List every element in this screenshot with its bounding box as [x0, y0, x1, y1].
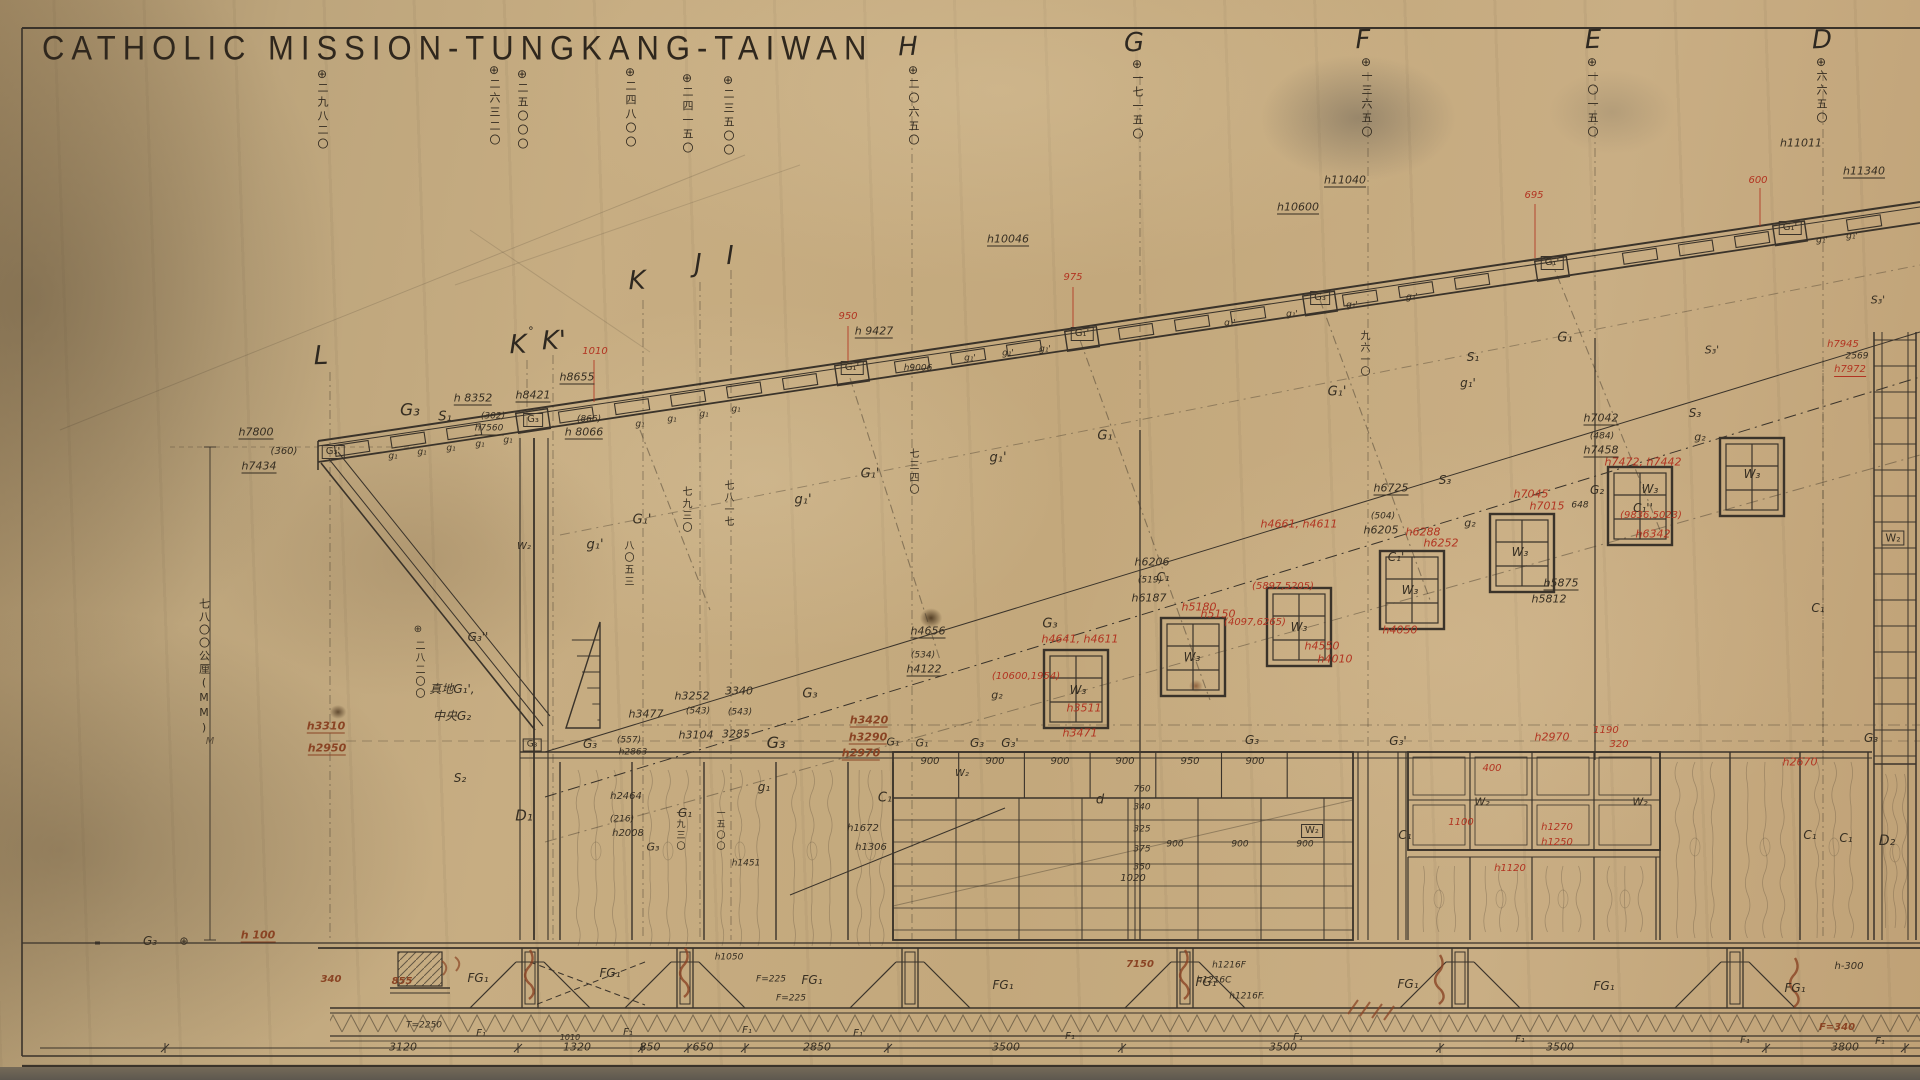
annotation-label: h4656	[911, 626, 946, 639]
grid-line-label-e: E	[1584, 25, 1601, 56]
annotation-label: G₁'	[861, 468, 880, 481]
boxed-member-label: G₁'	[1779, 221, 1802, 235]
grid-line-label-g: G	[1123, 28, 1144, 59]
annotation-label: 900	[1231, 841, 1248, 850]
elevation-value: 二三五〇〇	[720, 88, 736, 158]
annotation-label: 340	[1133, 804, 1150, 813]
annotation-label: h 9427	[855, 326, 893, 339]
annotation-label: G₃	[802, 688, 817, 701]
annotation-label: g₁'	[964, 355, 976, 364]
annotation-label: S₃'	[1871, 295, 1885, 306]
annotation-label: h2464	[610, 792, 642, 802]
annotation-label: 3285	[722, 729, 750, 740]
annotation-label: h3252	[675, 691, 710, 702]
annotation-label: h1672	[847, 824, 879, 834]
annotation-label: h1216F	[1212, 962, 1246, 971]
photo-edge	[0, 1067, 1920, 1080]
annotation-label: g₁'	[1039, 346, 1051, 355]
boxed-member-label: G₁'	[841, 361, 864, 375]
annotation-label: FG₁	[801, 974, 822, 986]
annotation-label: 375	[1133, 846, 1150, 855]
annotation-label: FG₁	[467, 972, 488, 984]
annotation-label: h1120	[1494, 864, 1526, 874]
annotation-label: g₁'	[1346, 302, 1358, 311]
elevation-value: 一〇一五〇	[1584, 70, 1600, 140]
boxed-member-label: G₃	[523, 413, 543, 427]
annotation-label: S₁	[438, 411, 451, 424]
annotation-label: G₃'	[1389, 735, 1406, 747]
annotation-label: G₁	[1097, 430, 1112, 443]
annotation-label: h4641, h4611	[1042, 634, 1119, 645]
annotation-label: G₃	[583, 738, 597, 750]
annotation-label: g₁'	[1816, 237, 1828, 246]
annotation-label: h4122	[907, 664, 942, 677]
annotation-label: F=225	[756, 976, 786, 985]
annotation-label: G₃''	[468, 631, 489, 643]
annotation-label: 3500	[992, 1042, 1020, 1053]
annotation-label: 340	[321, 975, 342, 985]
station-mark-icon: ⊕	[679, 72, 695, 84]
annotation-label: h7560	[475, 425, 504, 436]
annotation-label: h2970	[842, 748, 880, 761]
annotation-label: G₃	[767, 735, 786, 751]
annotation-label: (216)	[610, 816, 634, 825]
annotation-label: h4550	[1305, 641, 1340, 652]
annotation-label: h7972	[1834, 365, 1866, 377]
drawing-linework	[0, 0, 1920, 1080]
annotation-label: 二八二〇〇	[413, 640, 423, 700]
annotation-label: G₁	[1557, 332, 1572, 345]
boxed-member-label: G₁'	[1071, 327, 1094, 341]
annotation-label: h2970	[1535, 732, 1570, 743]
annotation-label: C₁'	[1388, 551, 1405, 563]
annotation-label: h7945	[1827, 340, 1859, 350]
annotation-label: g₁'	[794, 494, 811, 507]
annotation-label: h6252	[1424, 538, 1459, 549]
annotation-label: ⊕	[179, 936, 188, 947]
annotation-label: h8655	[560, 372, 595, 385]
annotation-label: 3800	[1831, 1042, 1859, 1053]
annotation-label: 1010	[582, 347, 607, 357]
elevation-value: 二四八〇〇	[622, 80, 638, 150]
station-mark-icon: ⊕	[1129, 58, 1145, 70]
annotation-label: (9836,5023)	[1620, 511, 1682, 521]
boxed-member-label: G₃	[1310, 291, 1330, 305]
annotation-label: W₃	[1512, 546, 1529, 558]
elevation-column: ⊕二四八〇〇	[622, 66, 638, 154]
elevation-column: ⊕二九八二〇	[314, 68, 330, 156]
annotation-label: 855	[392, 977, 413, 987]
annotation-label: g₁'	[586, 539, 603, 552]
grid-line-label-h: H	[898, 32, 919, 63]
annotation-label: (4097,6265)	[1224, 618, 1286, 628]
annotation-label: FG₁	[1195, 976, 1216, 988]
annotation-label: h11040	[1324, 175, 1366, 188]
annotation-label: h3471	[1063, 728, 1098, 739]
annotation-label: g₁'	[1224, 320, 1236, 329]
grid-line-label-l: L	[313, 341, 329, 371]
annotation-label: 七九三〇	[680, 486, 690, 534]
annotation-label: (302)	[481, 413, 505, 422]
annotation-label: h2670	[1783, 757, 1818, 768]
annotation-label: 900	[985, 757, 1004, 767]
annotation-label: g₂	[991, 690, 1002, 701]
annotation-label: F₁	[623, 1028, 633, 1038]
annotation-label: G₃	[647, 842, 660, 853]
annotation-label: C₁	[1803, 829, 1816, 841]
station-mark-icon: ⊕	[622, 66, 638, 78]
annotation-label: G₁'	[1328, 386, 1347, 399]
annotation-label: W₃	[1642, 483, 1659, 495]
annotation-label: (557)	[617, 737, 641, 746]
elevation-value: 二九八二〇	[314, 82, 330, 152]
annotation-label: 900	[1115, 757, 1134, 767]
annotation-label: g₁	[446, 445, 455, 454]
annotation-label: 400	[1482, 764, 1501, 774]
annotation-label: 2569	[1846, 353, 1869, 362]
annotation-label: h6342	[1636, 529, 1671, 540]
grid-line-label-k: K'	[541, 326, 566, 357]
elevation-value: 一七一五〇	[1129, 72, 1145, 142]
annotation-label: (543)	[728, 709, 752, 718]
boxed-member-label: G₃	[523, 739, 542, 752]
annotation-label: h10600	[1277, 202, 1319, 215]
station-mark-icon: ⊕	[486, 64, 502, 76]
annotation-label: 真地G₁',	[429, 683, 474, 695]
elevation-value: 一三六五〇	[1358, 70, 1374, 140]
annotation-label: g₁'	[1460, 377, 1476, 389]
annotation-label: h4050	[1383, 625, 1418, 636]
annotation-label: h7015	[1530, 501, 1565, 512]
annotation-label: h5875	[1544, 578, 1579, 591]
annotation-label: F₁	[1740, 1036, 1750, 1046]
annotation-label: h6725	[1374, 483, 1409, 496]
annotation-label: 350	[1133, 864, 1150, 873]
annotation-label: W₂	[517, 542, 531, 552]
annotation-label: g₁	[731, 406, 740, 415]
annotation-label: 900	[1050, 757, 1069, 767]
annotation-label: S₂	[454, 772, 466, 784]
annotation-label: G₂	[1590, 484, 1604, 496]
annotation-label: 1190	[1593, 726, 1618, 736]
annotation-label: 一九三〇	[675, 808, 684, 852]
station-mark-icon: ⊕	[314, 68, 330, 80]
annotation-label: h2008	[612, 829, 644, 839]
annotation-label: F₁	[1515, 1035, 1525, 1045]
annotation-label: h9006	[904, 365, 933, 374]
annotation-label: C₁	[878, 792, 892, 805]
annotation-label: 3500	[1269, 1042, 1297, 1053]
annotation-label: F₁	[1065, 1032, 1075, 1042]
annotation-label: 3120	[389, 1042, 417, 1053]
annotation-label: 3500	[1546, 1042, 1574, 1053]
annotation-label: 850	[640, 1042, 661, 1053]
annotation-label: h7434	[242, 461, 277, 474]
boxed-member-label: W₂	[1881, 531, 1904, 546]
annotation-label: ⊕	[414, 625, 422, 635]
station-mark-icon: ⊕	[1358, 56, 1374, 68]
annotation-label: W₃	[1744, 468, 1761, 480]
annotation-label: 950	[838, 312, 857, 322]
elevation-value: 二六三二〇	[486, 78, 502, 148]
annotation-label: (360)	[271, 447, 298, 457]
annotation-label: C₁	[1811, 602, 1824, 614]
elevation-value: 六六五〇	[1813, 70, 1829, 126]
annotation-label: F₁	[476, 1029, 486, 1039]
annotation-label: W₂	[1632, 797, 1647, 808]
annotation-label: F=340	[1819, 1023, 1855, 1033]
annotation-label: h1270	[1541, 823, 1573, 833]
annotation-label: h2950	[308, 743, 346, 756]
annotation-label: h11340	[1843, 166, 1885, 179]
annotation-label: h1250	[1541, 838, 1573, 848]
elevation-column: ⊕一三六五〇	[1358, 56, 1374, 144]
boxed-member-label: G₁'	[1541, 256, 1564, 270]
annotation-label: FG₁	[1593, 980, 1614, 992]
grid-line-label-k: K	[628, 266, 646, 297]
annotation-label: h11011	[1780, 138, 1822, 149]
annotation-label: 2850	[803, 1042, 831, 1053]
elevation-value: 二五〇〇〇	[514, 82, 530, 152]
station-mark-icon: ⊕	[720, 74, 736, 86]
annotation-label: h7472, h7442	[1605, 457, 1682, 468]
annotation-label: FG₁	[992, 979, 1013, 991]
annotation-label: h6205	[1364, 525, 1399, 536]
annotation-label: h3104	[679, 730, 714, 741]
annotation-label: 九六一〇	[1358, 330, 1368, 378]
annotation-label: G₃	[1042, 618, 1057, 631]
elevation-column: ⊕二〇六五〇	[905, 64, 921, 152]
annotation-label: h3477	[629, 709, 664, 720]
annotation-label: 七八〇〇公厘(MM)	[199, 598, 210, 736]
annotation-label: S₃	[1439, 474, 1451, 486]
blueprint-scan: CATHOLIC MISSION-TUNGKANG-TAIWAN h7800(3…	[0, 0, 1920, 1080]
annotation-label: 900	[920, 757, 939, 767]
annotation-label: 七三四〇	[907, 448, 917, 496]
elevation-column: ⊕二五〇〇〇	[514, 68, 530, 156]
annotation-label: 1020	[1120, 874, 1145, 884]
annotation-label: W₃	[1184, 651, 1201, 663]
annotation-label: g₁	[503, 437, 512, 446]
annotation-label: g₁'	[1846, 233, 1858, 242]
annotation-label: g₁	[667, 416, 676, 425]
annotation-label: W₃	[1070, 684, 1087, 696]
annotation-label: 650	[693, 1042, 714, 1053]
annotation-label: S₃	[1689, 407, 1701, 419]
annotation-label: 648	[1571, 502, 1588, 511]
annotation-label: g₁'	[1002, 350, 1014, 359]
grid-line-label-: °	[528, 324, 534, 337]
annotation-label: g₁'	[1406, 294, 1418, 303]
annotation-label: h-300	[1834, 962, 1863, 972]
annotation-label: D₂	[1879, 834, 1895, 848]
elevation-column: ⊕一七一五〇	[1129, 58, 1145, 146]
annotation-label: (543)	[686, 708, 710, 717]
annotation-label: g₁	[417, 449, 426, 458]
annotation-label: h8421	[516, 390, 551, 403]
annotation-label: G₁	[916, 738, 929, 749]
annotation-label: G₃	[143, 935, 157, 947]
annotation-label: 中央G₂	[433, 710, 471, 722]
annotation-label: G₃	[1864, 732, 1878, 744]
elevation-column: ⊕二三五〇〇	[720, 74, 736, 162]
elevation-column: ⊕二六三二〇	[486, 64, 502, 152]
annotation-label: g₂	[1694, 432, 1705, 443]
annotation-label: 7150	[1126, 960, 1154, 970]
annotation-label: 3340	[725, 686, 753, 697]
annotation-label: W₃	[1291, 621, 1308, 633]
annotation-label: h1451	[732, 860, 761, 869]
elevation-column: ⊕一〇一五〇	[1584, 56, 1600, 144]
annotation-label: S₁	[1467, 351, 1479, 363]
annotation-label: G₃	[1245, 734, 1259, 746]
elevation-column: ⊕六六五〇	[1813, 56, 1829, 130]
annotation-label: 320	[1609, 740, 1628, 750]
annotation-label: 325	[1133, 826, 1150, 835]
annotation-label: 1320	[563, 1042, 591, 1053]
annotation-label: (534)	[911, 652, 935, 661]
annotation-label: g₁'	[1286, 311, 1298, 320]
annotation-label: g₁	[758, 781, 770, 793]
annotation-label: (504)	[1371, 513, 1395, 522]
annotation-label: g₁'	[989, 452, 1006, 465]
annotation-label: h 8066	[565, 427, 603, 440]
annotation-label: h3511	[1067, 703, 1102, 714]
annotation-label: 八〇五三	[622, 540, 632, 588]
annotation-label: FG₁	[1397, 978, 1418, 990]
grid-line-label-k: K	[509, 330, 527, 361]
annotation-label: d	[1096, 794, 1104, 807]
annotation-label: F=225	[776, 995, 806, 1004]
annotation-label: 600	[1748, 176, 1767, 186]
drawing-title: CATHOLIC MISSION-TUNGKANG-TAIWAN	[42, 28, 873, 68]
annotation-label: FG₁	[599, 967, 620, 979]
station-mark-icon: ⊕	[905, 64, 921, 76]
annotation-label: h 100	[241, 930, 276, 943]
annotation-label: 975	[1063, 273, 1082, 283]
annotation-label: h7800	[239, 427, 274, 440]
annotation-label: 950	[1180, 757, 1199, 767]
annotation-label: F₁	[742, 1026, 752, 1036]
annotation-label: C₁	[1398, 829, 1411, 841]
annotation-label: h4010	[1318, 654, 1353, 665]
annotation-label: h7045	[1514, 489, 1549, 500]
annotation-label: W₃	[1402, 584, 1419, 596]
annotation-label: G₁	[887, 737, 900, 748]
annotation-label: g₁	[475, 441, 484, 450]
annotation-label: W₂	[955, 769, 969, 779]
annotation-label: h1306	[855, 843, 887, 853]
annotation-label: h3310	[307, 721, 345, 734]
annotation-label: 1100	[1448, 818, 1473, 828]
annotation-label: h6206	[1135, 557, 1170, 568]
station-mark-icon: ⊕	[1813, 56, 1829, 68]
annotation-label: G₃	[970, 737, 984, 749]
elevation-column: ⊕二四一五〇	[679, 72, 695, 160]
annotation-label: (519)	[1138, 577, 1162, 586]
annotation-label: F₁	[1875, 1037, 1885, 1047]
annotation-label: 760	[1133, 786, 1150, 795]
boxed-member-label: W₂	[1301, 824, 1323, 838]
annotation-label: D₁	[515, 809, 533, 824]
annotation-label: (10600,1954)	[992, 672, 1060, 682]
annotation-label: 900	[1166, 841, 1183, 850]
annotation-label: (5897,5205)	[1252, 582, 1314, 592]
annotation-label: h1050	[715, 954, 744, 963]
annotation-label: W₂	[1474, 797, 1489, 808]
elevation-value: 二〇六五〇	[905, 78, 921, 148]
annotation-label: g₁	[699, 411, 708, 420]
station-mark-icon: ⊕	[514, 68, 530, 80]
annotation-label: T=2250	[406, 1022, 442, 1031]
annotation-label: h6187	[1132, 593, 1167, 604]
grid-line-label-f: F	[1355, 25, 1371, 56]
annotation-label: g₁	[635, 421, 644, 430]
boxed-member-label: G₃'	[322, 445, 345, 459]
annotation-label: g₂	[1464, 518, 1475, 529]
grid-line-label-i: I	[726, 241, 735, 271]
annotation-label: 一五〇〇	[715, 808, 724, 852]
grid-line-label-j: J	[694, 249, 703, 279]
annotation-label: 七八一七	[722, 480, 732, 528]
annotation-label: h2863	[619, 749, 648, 758]
annotation-label: G₃	[400, 403, 420, 420]
annotation-label: h5812	[1532, 594, 1567, 605]
annotation-label: h 8352	[454, 393, 492, 406]
annotation-label: h3290	[849, 732, 887, 745]
annotation-label: h1216F.	[1229, 993, 1265, 1002]
annotation-label: G₁'	[633, 514, 652, 527]
annotation-label: C₁	[1839, 832, 1852, 844]
annotation-label: h3420	[850, 715, 888, 728]
annotation-label: FG₁	[1784, 982, 1805, 994]
annotation-label: G₃'	[1001, 737, 1018, 749]
annotation-label: 695	[1524, 191, 1543, 201]
annotation-label: (484)	[1590, 433, 1614, 442]
annotation-label: M	[206, 737, 215, 747]
annotation-label: h7042	[1584, 413, 1619, 426]
station-mark-icon: ⊕	[1584, 56, 1600, 68]
annotation-label: h4661, h4611	[1261, 519, 1338, 530]
annotation-label: h10046	[987, 234, 1029, 247]
grid-line-label-d: D	[1811, 25, 1832, 56]
annotation-label: S₃'	[1705, 345, 1719, 356]
annotation-label: 900	[1245, 757, 1264, 767]
elevation-value: 二四一五〇	[679, 86, 695, 156]
annotation-label: g₁	[388, 453, 397, 462]
annotation-label: F₁	[853, 1029, 863, 1039]
annotation-label: (866)	[577, 416, 601, 425]
annotation-label: 900	[1296, 841, 1313, 850]
